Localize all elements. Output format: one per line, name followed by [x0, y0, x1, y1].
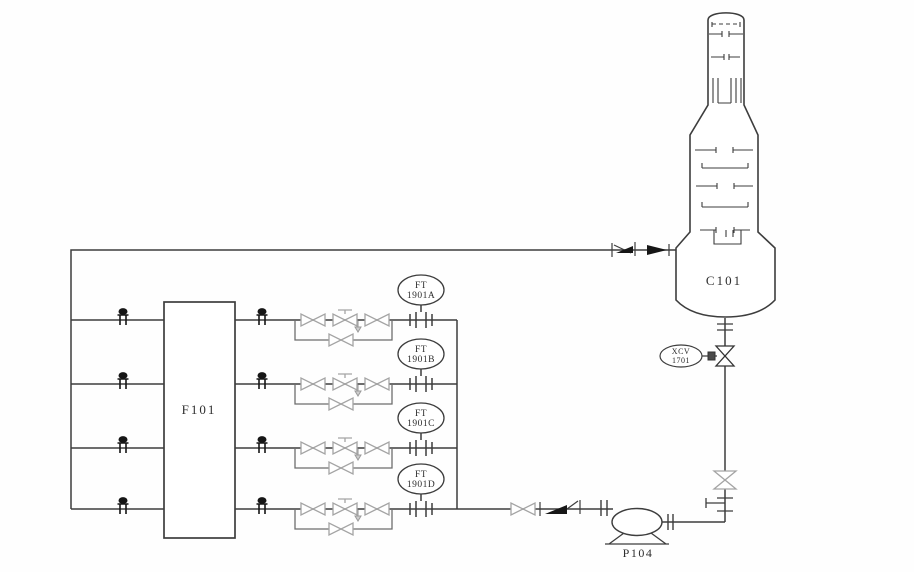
manifold-pass-a[interactable]: [295, 310, 392, 346]
orifice-b: [410, 368, 432, 392]
ft-b-line2: 1901B: [407, 355, 435, 365]
furnace-shell: [164, 302, 235, 538]
ft-c-line1: FT: [415, 409, 427, 419]
orifice-a: [410, 304, 432, 328]
xcv-body-bottom[interactable]: [716, 356, 734, 366]
pump-label: P104: [623, 546, 654, 560]
inlet-valve-a[interactable]: [118, 308, 129, 325]
outlet-valve-b[interactable]: [257, 372, 268, 389]
spec-break: [706, 498, 733, 511]
ft-b-line1: FT: [415, 345, 427, 355]
column-vessel: C101: [676, 13, 775, 317]
xcv-tag-line1: XCV: [672, 347, 690, 356]
ft-d-line1: FT: [415, 470, 427, 480]
xcv-tag-line2: 1701: [672, 356, 690, 365]
outlet-valve-a[interactable]: [257, 308, 268, 325]
inlet-valve-d[interactable]: [118, 497, 129, 514]
riser-gate-valve[interactable]: [714, 471, 736, 489]
pid-diagram: C101 F101 FT 1901A FT 19: [0, 0, 914, 572]
ft-d-line2: 1901D: [407, 480, 435, 490]
flow-transmitters[interactable]: FT 1901A FT 1901B FT 1901C FT 1901D: [398, 275, 444, 517]
ft-c-line2: 1901C: [407, 419, 435, 429]
manifold-pass-d[interactable]: [295, 499, 392, 535]
inlet-valve-b[interactable]: [118, 372, 129, 389]
orifice-d: [410, 493, 432, 517]
outlet-valve-d[interactable]: [257, 497, 268, 514]
suction-flange: [601, 500, 607, 516]
xcv-actuator: [708, 352, 715, 360]
pump-body[interactable]: [612, 509, 662, 536]
xcv-body-top[interactable]: [716, 346, 734, 356]
suction-gate-valve[interactable]: [511, 503, 535, 515]
pump-suction-fittings: [511, 500, 607, 516]
flow-arrow-to-column: [647, 245, 667, 255]
pass-valve-manifolds[interactable]: [295, 310, 392, 535]
ft-a-line2: 1901A: [407, 291, 435, 301]
furnace-inlet-passes: [71, 320, 164, 509]
ft-a-line1: FT: [415, 281, 427, 291]
outlet-valve-c[interactable]: [257, 436, 268, 453]
column-shell: [676, 13, 775, 317]
xcv-1701-valve[interactable]: XCV 1701: [660, 345, 734, 367]
transfer-line-and-left-header: [71, 250, 676, 509]
manifold-pass-b[interactable]: [295, 374, 392, 410]
pid-canvas: C101 F101 FT 1901A FT 19: [0, 0, 914, 572]
column-label: C101: [706, 273, 742, 288]
inlet-valve-c[interactable]: [118, 436, 129, 453]
manifold-pass-c[interactable]: [295, 438, 392, 474]
furnace-vessel: F101: [164, 302, 235, 538]
furnace-label: F101: [182, 402, 217, 417]
pump-unit[interactable]: P104: [605, 509, 673, 561]
orifice-c: [410, 432, 432, 456]
